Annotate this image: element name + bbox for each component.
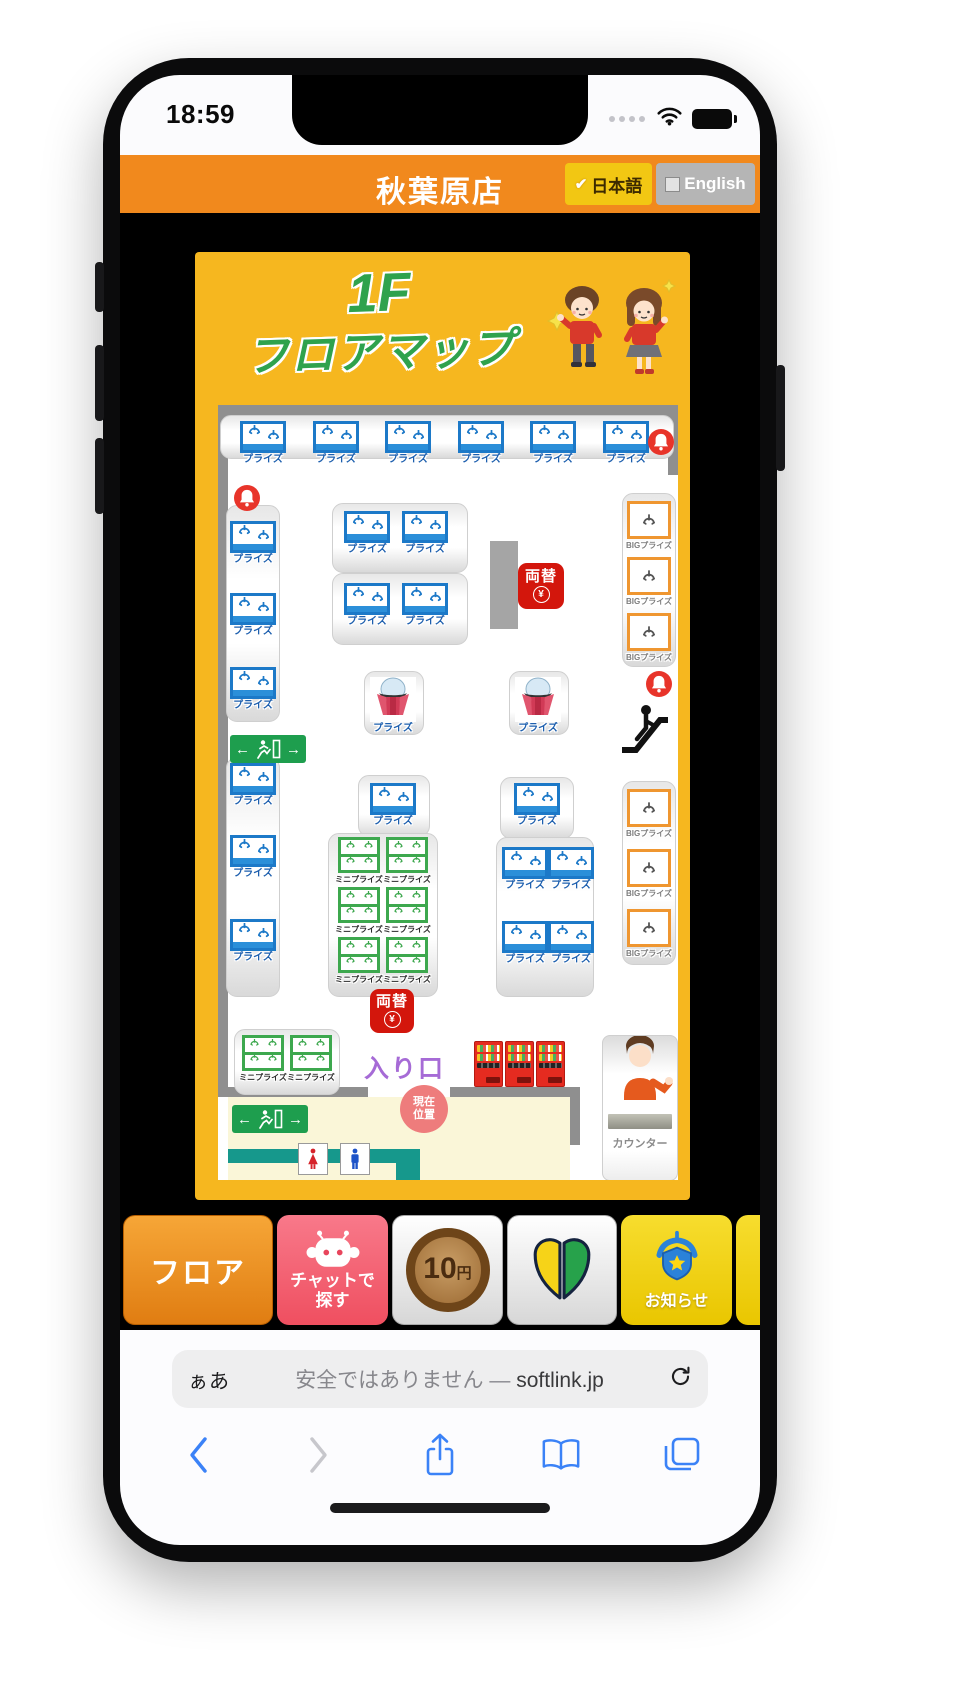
bookmarks-button[interactable]	[539, 1430, 583, 1480]
big-claw-machine: BIGプライズ	[624, 557, 674, 607]
claw-icon	[386, 887, 428, 923]
claw-machine: プライズ	[456, 421, 506, 465]
floor-map-panel: 1F フロアマップ	[195, 252, 690, 1200]
machine-label: ミニプライズ	[335, 874, 383, 885]
big-claw-machine: BIGプライズ	[624, 613, 674, 663]
staff-characters-illustration	[546, 278, 678, 399]
claw-icon	[230, 593, 276, 625]
machine-label: プライズ	[551, 880, 591, 891]
machine-label: ミニプライズ	[335, 924, 383, 935]
claw-icon	[515, 677, 561, 722]
claw-machine: プライズ	[528, 421, 578, 465]
mini-claw-machine: ミニプライズ	[286, 1035, 336, 1083]
claw-machine: プライズ	[228, 919, 278, 963]
volume-up-button	[95, 345, 104, 421]
machine-label: ミニプライズ	[383, 874, 431, 885]
claw-icon	[338, 887, 380, 923]
money-exchange-icon: 両替¥	[370, 989, 414, 1033]
checkbox-icon	[665, 177, 680, 192]
machine-label: プライズ	[461, 454, 501, 465]
alarm-bell-icon	[234, 485, 260, 511]
claw-icon	[548, 847, 594, 879]
machine-label: プライズ	[405, 616, 445, 627]
toolbar-button-notice[interactable]: お知らせ	[621, 1215, 732, 1325]
machine-label: プライズ	[505, 880, 545, 891]
notch	[292, 75, 588, 145]
machine-label: BIGプライズ	[626, 596, 672, 607]
machine-label: プライズ	[606, 454, 646, 465]
claw-machine: プライズ	[546, 847, 596, 891]
claw-machine: プライズ	[228, 763, 278, 807]
vending-machine	[505, 1041, 534, 1087]
machine-label: プライズ	[347, 616, 387, 627]
counter-label: カウンター	[613, 1135, 668, 1151]
exit-runner-icon	[257, 1109, 283, 1129]
counter-area: カウンター	[602, 1035, 678, 1180]
claw-machine: プライズ	[228, 593, 278, 637]
machine-label: プライズ	[518, 723, 558, 734]
pillar	[490, 541, 518, 629]
exit-runner-icon	[255, 739, 281, 759]
claw-machine: プライズ	[238, 421, 288, 465]
emergency-exit-sign: ← →	[230, 735, 306, 763]
mini-claw-machine: ミニプライズ	[382, 887, 432, 935]
ten-yen-coin-icon: 10円	[406, 1228, 490, 1312]
claw-icon	[230, 667, 276, 699]
claw-icon	[370, 677, 416, 722]
claw-machine: プライズ	[500, 847, 550, 891]
claw-icon	[514, 783, 560, 815]
entrance-label: 入り口	[364, 1049, 474, 1085]
claw-icon	[370, 783, 416, 815]
machine-label: プライズ	[373, 816, 413, 827]
corridor-band	[396, 1163, 420, 1180]
claw-icon	[627, 909, 671, 947]
machine-label: プライズ	[233, 554, 273, 565]
claw-icon	[548, 921, 594, 953]
big-claw-machine: BIGプライズ	[624, 909, 674, 959]
mini-claw-machine: ミニプライズ	[334, 837, 384, 885]
language-toggle-japanese[interactable]: ✔ 日本語	[565, 163, 652, 205]
claw-icon	[502, 921, 548, 953]
machine-label: BIGプライズ	[626, 652, 672, 663]
claw-icon	[627, 789, 671, 827]
mini-claw-machine: ミニプライズ	[382, 837, 432, 885]
claw-icon	[386, 837, 428, 873]
machine-label: ミニプライズ	[383, 924, 431, 935]
page-content: 1F フロアマップ	[120, 213, 760, 1330]
back-button[interactable]	[176, 1430, 220, 1480]
stage: 18:59 秋葉原店 ✔ 日本語 E	[0, 0, 960, 1681]
claw-icon	[627, 501, 671, 539]
app-header: 秋葉原店 ✔ 日本語 English	[120, 155, 760, 213]
claw-icon	[338, 937, 380, 973]
claw-machine: プライズ	[383, 421, 433, 465]
claw-icon	[386, 937, 428, 973]
money-exchange-icon: 両替¥	[518, 563, 564, 609]
claw-icon	[230, 835, 276, 867]
machine-label: BIGプライズ	[626, 888, 672, 899]
machine-label: プライズ	[405, 544, 445, 555]
claw-machine: プライズ	[228, 835, 278, 879]
address-bar[interactable]: ぁあ 安全ではありません — softlink.jp	[172, 1350, 708, 1408]
vending-machine	[474, 1041, 503, 1087]
reader-button[interactable]: ぁあ	[188, 1365, 230, 1394]
machine-label: プライズ	[316, 454, 356, 465]
restroom-male-icon	[340, 1143, 370, 1175]
dome-claw-machine: プライズ	[513, 677, 563, 734]
claw-badge-icon	[647, 1229, 707, 1285]
address-text: 安全ではありません — softlink.jp	[230, 1364, 669, 1394]
claw-machine: プライズ	[342, 583, 392, 627]
browser-chrome: ぁあ 安全ではありません — softlink.jp	[120, 1330, 760, 1545]
machine-label: BIGプライズ	[626, 540, 672, 551]
phone-screen: 18:59 秋葉原店 ✔ 日本語 E	[120, 75, 760, 1545]
reload-button[interactable]	[669, 1365, 692, 1393]
machine-label: プライズ	[517, 816, 557, 827]
browser-navbar	[120, 1430, 760, 1480]
toolbar-button-partial[interactable]	[736, 1215, 760, 1325]
machine-label: プライズ	[233, 626, 273, 637]
counter-desk	[608, 1114, 672, 1129]
machine-label: プライズ	[233, 868, 273, 879]
machine-label: プライズ	[233, 952, 273, 963]
battery-icon	[692, 109, 732, 129]
claw-icon	[313, 421, 359, 453]
wifi-icon	[656, 105, 683, 132]
machine-label: プライズ	[533, 454, 573, 465]
toolbar-button-beginner[interactable]	[507, 1215, 617, 1325]
claw-icon	[530, 421, 576, 453]
machine-label: プライズ	[505, 954, 545, 965]
machine-label: BIGプライズ	[626, 948, 672, 959]
floor-map-title: 1F フロアマップ	[193, 258, 567, 391]
mini-claw-machine: ミニプライズ	[334, 887, 384, 935]
vending-machine	[536, 1041, 565, 1087]
big-claw-machine: BIGプライズ	[624, 501, 674, 551]
machine-label: ミニプライズ	[383, 974, 431, 985]
claw-icon	[502, 847, 548, 879]
claw-icon	[603, 421, 649, 453]
dome-claw-machine: プライズ	[368, 677, 418, 734]
mini-claw-machine: ミニプライズ	[238, 1035, 288, 1083]
toolbar-button-floor[interactable]: フロア	[123, 1215, 273, 1325]
claw-icon	[230, 763, 276, 795]
cellular-dots-icon	[609, 116, 645, 122]
machine-label: プライズ	[233, 796, 273, 807]
home-indicator[interactable]	[330, 1503, 550, 1513]
claw-machine: プライズ	[228, 667, 278, 711]
share-button[interactable]	[418, 1430, 462, 1480]
machine-label: プライズ	[243, 454, 283, 465]
escalator-icon	[616, 693, 672, 764]
claw-icon	[402, 583, 448, 615]
wall	[570, 1097, 580, 1145]
forward-button[interactable]	[297, 1430, 341, 1480]
status-bar: 18:59	[120, 75, 760, 155]
check-icon: ✔	[575, 175, 588, 193]
machine-label: プライズ	[388, 454, 428, 465]
wall	[218, 405, 228, 1097]
claw-machine: プライズ	[368, 783, 418, 827]
current-location-badge: 現在 位置	[400, 1085, 448, 1133]
machine-label: ミニプライズ	[239, 1072, 287, 1083]
claw-icon	[385, 421, 431, 453]
claw-machine: プライズ	[228, 521, 278, 565]
claw-machine: プライズ	[311, 421, 361, 465]
counter-staff-icon	[607, 1036, 673, 1120]
machine-label: BIGプライズ	[626, 828, 672, 839]
claw-icon	[338, 837, 380, 873]
claw-machine: プライズ	[400, 511, 450, 555]
chat-robot-icon	[304, 1229, 362, 1271]
claw-machine: プライズ	[546, 921, 596, 965]
claw-icon	[627, 613, 671, 651]
phone-frame: 18:59 秋葉原店 ✔ 日本語 E	[103, 58, 777, 1562]
claw-machine: プライズ	[400, 583, 450, 627]
machine-label: プライズ	[373, 723, 413, 734]
claw-icon	[344, 583, 390, 615]
mini-claw-machine: ミニプライズ	[382, 937, 432, 985]
machine-label: ミニプライズ	[335, 974, 383, 985]
claw-icon	[627, 557, 671, 595]
tabs-button[interactable]	[660, 1430, 704, 1480]
status-time: 18:59	[166, 99, 235, 130]
mini-claw-machine: ミニプライズ	[334, 937, 384, 985]
toolbar-button-chat[interactable]: チャットで 探す	[277, 1215, 388, 1325]
claw-machine: プライズ	[512, 783, 562, 827]
machine-label: プライズ	[347, 544, 387, 555]
claw-machine: プライズ	[342, 511, 392, 555]
claw-icon	[458, 421, 504, 453]
language-toggle-english[interactable]: English	[656, 163, 755, 205]
volume-down-button	[95, 438, 104, 514]
machine-label: プライズ	[233, 700, 273, 711]
claw-icon	[402, 511, 448, 543]
claw-icon	[344, 511, 390, 543]
power-button	[776, 365, 785, 471]
claw-machine: プライズ	[601, 421, 651, 465]
wall	[450, 1087, 580, 1097]
big-claw-machine: BIGプライズ	[624, 789, 674, 839]
claw-icon	[230, 919, 276, 951]
claw-machine: プライズ	[500, 921, 550, 965]
emergency-exit-sign: ← →	[232, 1105, 308, 1133]
alarm-bell-icon	[648, 429, 674, 455]
big-claw-machine: BIGプライズ	[624, 849, 674, 899]
mute-switch	[95, 262, 104, 312]
toolbar-button-coin[interactable]: 10円	[392, 1215, 503, 1325]
claw-icon	[290, 1035, 332, 1071]
machine-label: プライズ	[551, 954, 591, 965]
claw-icon	[230, 521, 276, 553]
machine-label: ミニプライズ	[287, 1072, 335, 1083]
restroom-female-icon	[298, 1143, 328, 1175]
claw-icon	[627, 849, 671, 887]
beginner-mark-icon	[529, 1233, 595, 1307]
claw-icon	[240, 421, 286, 453]
claw-icon	[242, 1035, 284, 1071]
map-floor: プライズプライズプライズプライズプライズプライズプライズプライズプライズプライズ…	[218, 405, 678, 1180]
